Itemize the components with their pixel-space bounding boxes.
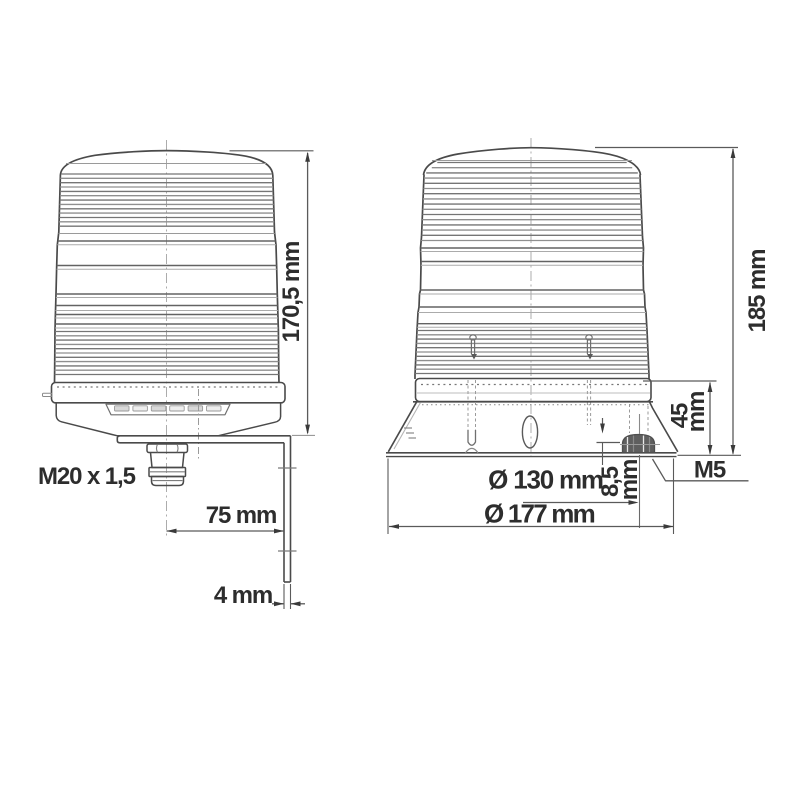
svg-text:4 mm: 4 mm xyxy=(214,582,272,609)
svg-text:mm: mm xyxy=(683,392,710,432)
svg-text:Ø 130 mm: Ø 130 mm xyxy=(488,465,603,495)
svg-text:mm: mm xyxy=(616,460,643,500)
svg-text:M20 x 1,5: M20 x 1,5 xyxy=(38,463,136,490)
svg-text:Ø 177 mm: Ø 177 mm xyxy=(484,499,595,529)
svg-text:170,5 mm: 170,5 mm xyxy=(278,242,305,343)
svg-text:75 mm: 75 mm xyxy=(206,502,277,529)
svg-text:M5: M5 xyxy=(694,457,726,484)
svg-text:185 mm: 185 mm xyxy=(744,250,771,333)
